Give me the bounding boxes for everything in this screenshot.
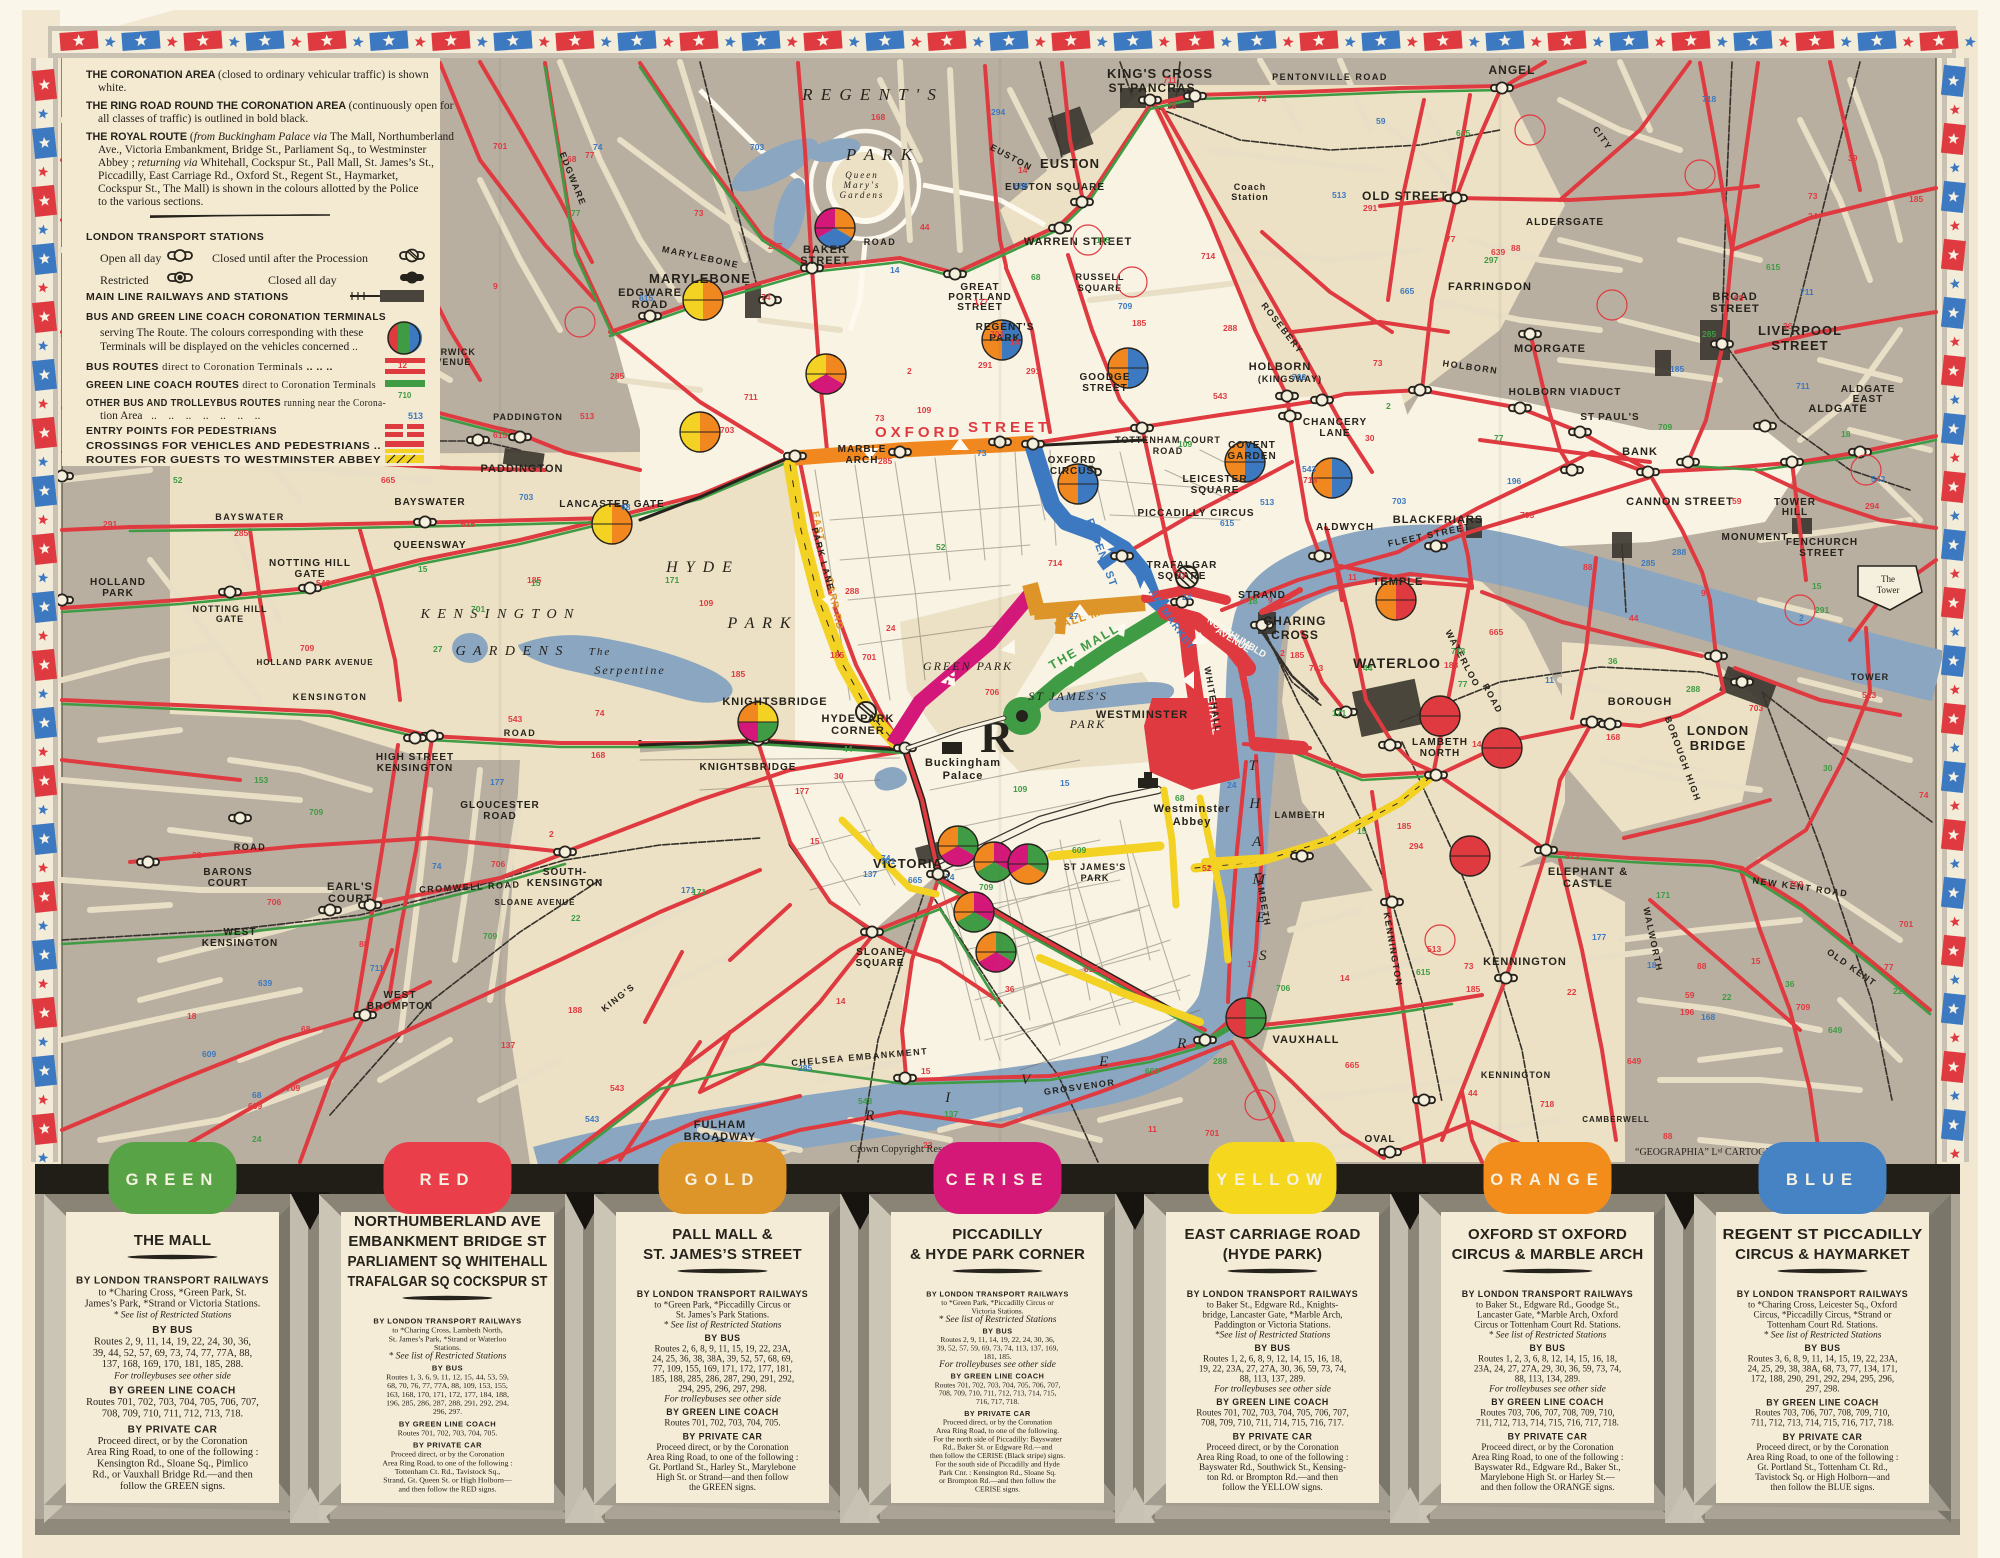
svg-text:MAIN LINE RAILWAYS AND STATION: MAIN LINE RAILWAYS AND STATIONS [86,291,289,303]
svg-text:R: R [864,1108,875,1124]
svg-text:665: 665 [908,875,922,885]
svg-text:CROSS: CROSS [1271,628,1319,642]
svg-text:513: 513 [1565,851,1579,861]
svg-text:Proceed direct, or by the Coro: Proceed direct, or by the Coronation [656,1442,789,1452]
svg-text:* See list of Restricted Stati: * See list of Restricted Stations [1489,1330,1607,1341]
svg-text:73: 73 [694,208,704,218]
svg-text:709: 709 [1796,1002,1810,1012]
svg-text:RED: RED [420,1171,476,1189]
svg-text:665: 665 [381,475,395,485]
svg-text:NORTH: NORTH [1420,748,1461,759]
svg-text:KENSINGTON: KENSINGTON [293,692,368,702]
svg-text:Terminals will be displayed on: Terminals will be displayed on the vehic… [100,341,358,353]
svg-text:NORTHUMBERLAND AVE: NORTHUMBERLAND AVE [354,1213,541,1230]
svg-text:LAMBETH: LAMBETH [1412,737,1468,748]
svg-text:615: 615 [639,293,653,303]
svg-text:H: H [1248,796,1261,812]
svg-text:701: 701 [1899,919,1913,929]
svg-text:ST PAUL'S: ST PAUL'S [1580,412,1639,423]
svg-text:513: 513 [1260,497,1274,507]
svg-text:Gt. Portland St., Harley St.,: Gt. Portland St., Harley St., Marylebone [649,1462,796,1472]
svg-text:718: 718 [1540,1099,1554,1109]
svg-text:23A, 24, 27, 27A, 29, 30, 36,: 23A, 24, 27, 27A, 29, 30, 36, 59, 73, 74… [1474,1364,1621,1374]
svg-text:ton Rd. or Brompton Rd.—and th: ton Rd. or Brompton Rd.—and then [1207,1472,1339,1482]
svg-text:MOORGATE: MOORGATE [1514,343,1586,355]
svg-text:73: 73 [1373,358,1383,368]
svg-text:KNIGHTSBRIDGE: KNIGHTSBRIDGE [700,762,797,773]
svg-text:HYDE PARK: HYDE PARK [822,713,895,725]
svg-text:Routes 701, 702, 703, 704, 705: Routes 701, 702, 703, 704, 705, 706, 707… [1196,1408,1349,1418]
svg-text:297: 297 [1484,255,1498,265]
svg-text:Routes 701, 702, 703, 704, 705: Routes 701, 702, 703, 704, 705. [664,1418,780,1428]
svg-text:OVAL: OVAL [1364,1134,1395,1145]
svg-text:Coach: Coach [1234,182,1267,192]
svg-text:36: 36 [1608,656,1618,666]
svg-text:711, 712, 713, 714, 715, 716,: 711, 712, 713, 714, 715, 716, 717, 718. [1751,1418,1894,1428]
svg-text:FARRINGDON: FARRINGDON [1448,281,1532,293]
svg-text:701: 701 [471,604,485,614]
svg-text:Proceed direct, or by the Coro: Proceed direct, or by the Coronation [1481,1442,1614,1452]
svg-text:Area Ring Road, to one of the: Area Ring Road, to one of the following … [1747,1452,1899,1462]
svg-text:52: 52 [1202,863,1212,873]
svg-text:Proceed direct, or by the Coro: Proceed direct, or by the Coronation [1206,1442,1339,1452]
svg-text:BY LONDON TRANSPORT RAILWAYS: BY LONDON TRANSPORT RAILWAYS [76,1276,269,1287]
svg-text:52: 52 [936,542,946,552]
svg-text:ALDWYCH: ALDWYCH [1316,522,1374,533]
svg-text:714: 714 [1048,558,1062,568]
svg-text:703: 703 [519,492,533,502]
svg-text:The: The [589,646,612,658]
svg-text:GARDEN: GARDEN [1227,451,1276,462]
svg-text:Open all day: Open all day [100,251,161,265]
svg-text:709: 709 [300,643,314,653]
svg-text:709: 709 [979,882,993,892]
svg-text:27: 27 [1069,611,1079,621]
svg-text:513: 513 [1427,944,1441,954]
svg-text:Piccadilly, East Carriage Rd.,: Piccadilly, East Carriage Rd., Oxford St… [98,170,398,182]
svg-text:68: 68 [1175,793,1185,803]
svg-text:703: 703 [1292,372,1306,382]
svg-text:GREEN: GREEN [126,1171,220,1189]
svg-text:14: 14 [836,996,846,1006]
svg-text:Routes 1, 2, 3, 6, 8, 12, 14,: Routes 1, 2, 3, 6, 8, 12, 14, 15, 16, 18… [1478,1354,1617,1364]
svg-text:2: 2 [1386,401,1391,411]
svg-text:Westminster: Westminster [1154,803,1231,815]
svg-text:COURT: COURT [328,893,372,905]
svg-text:52: 52 [173,475,183,485]
svg-text:HOLLAND PARK AVENUE: HOLLAND PARK AVENUE [256,658,373,667]
svg-text:Area Ring Road, to one of the: Area Ring Road, to one of the following … [382,1458,512,1467]
svg-text:615: 615 [1766,262,1780,272]
svg-text:709: 709 [483,931,497,941]
svg-text:Marylebone High St. or Harley: Marylebone High St. or Harley St.— [1480,1472,1616,1482]
svg-text:168: 168 [871,112,885,122]
svg-text:to the various sections.: to the various sections. [98,196,204,208]
svg-text:649: 649 [1828,1025,1842,1035]
svg-text:V: V [1021,1072,1032,1088]
svg-text:109: 109 [917,405,931,415]
svg-text:ROUTES FOR GUESTS TO WESTMINST: ROUTES FOR GUESTS TO WESTMINSTER ABBEY [86,454,381,466]
svg-text:18: 18 [187,1011,197,1021]
svg-text:GOLD: GOLD [685,1171,761,1189]
svg-text:14: 14 [1010,337,1020,347]
svg-text:ORANGE: ORANGE [1490,1171,1604,1189]
svg-text:WEST: WEST [384,990,417,1001]
svg-text:Routes 3, 6, 8, 9, 11, 14, 15,: Routes 3, 6, 8, 9, 11, 14, 15, 19, 22, 2… [1748,1353,1898,1363]
svg-text:77: 77 [1884,962,1894,972]
svg-text:HILL: HILL [1782,507,1808,518]
svg-text:44: 44 [1629,613,1639,623]
svg-text:291: 291 [1026,366,1040,376]
svg-text:Serpentine: Serpentine [594,663,665,677]
svg-text:WARREN STREET: WARREN STREET [1024,236,1132,248]
svg-text:BY PRIVATE CAR: BY PRIVATE CAR [1783,1432,1863,1442]
svg-text:22: 22 [571,913,581,923]
svg-text:High St. or Strand—and then fo: High St. or Strand—and then follow [656,1472,789,1482]
svg-text:I: I [944,1090,951,1106]
svg-text:88: 88 [1697,961,1707,971]
svg-text:CROSSINGS FOR VEHICLES AND PED: CROSSINGS FOR VEHICLES AND PEDESTRIANS .… [86,440,381,452]
svg-text:HOLBORN VIADUCT: HOLBORN VIADUCT [1509,387,1622,398]
svg-text:THE ROYAL ROUTE (from Buckingh: THE ROYAL ROUTE (from Buckingham Palace … [86,131,454,143]
svg-text:* See list of Restricted Stati: * See list of Restricted Stations [114,1310,232,1321]
svg-text:all classes of traffic) is out: all classes of traffic) is outlined in b… [98,113,308,125]
svg-text:716, 717, 718.: 716, 717, 718. [976,1397,1019,1406]
svg-text:Bayswater Rd., Edgware Rd., Ba: Bayswater Rd., Edgware Rd., Baker St., [1474,1462,1620,1472]
svg-text:2: 2 [1799,613,1804,623]
svg-text:291: 291 [1363,203,1377,213]
svg-text:NOTTING HILL: NOTTING HILL [269,558,351,569]
svg-text:BUS AND GREEN LINE COACH CORON: BUS AND GREEN LINE COACH CORONATION TERM… [86,311,386,323]
svg-text:14: 14 [1018,165,1028,175]
svg-text:to *Charing Cross, *Green Park: to *Charing Cross, *Green Park, St. [98,1287,246,1298]
svg-text:Circus or Tottenham Court Rd.: Circus or Tottenham Court Rd. Stations. [1474,1320,1620,1330]
svg-text:Routes 1, 2, 6, 8, 9, 12, 14,: Routes 1, 2, 6, 8, 9, 12, 14, 15, 16, 18… [1203,1354,1342,1364]
svg-text:the GREEN signs.: the GREEN signs. [689,1482,756,1492]
svg-text:27: 27 [433,644,443,654]
svg-text:EARL'S: EARL'S [327,881,373,893]
svg-text:15: 15 [531,578,541,588]
svg-text:* See list of Restricted Stati: * See list of Restricted Stations [939,1314,1057,1325]
svg-text:15: 15 [1812,581,1822,591]
svg-text:SLOANE AVENUE: SLOANE AVENUE [494,898,575,907]
svg-text:297: 297 [768,241,782,251]
svg-text:BY GREEN LINE COACH: BY GREEN LINE COACH [1216,1397,1328,1407]
svg-text:bridge, Lancaster Gate, *Marbl: bridge, Lancaster Gate, *Marble Arch, [1202,1310,1342,1320]
svg-text:CIRCUS: CIRCUS [1050,466,1094,477]
svg-text:Routes 703, 706, 707, 708, 709: Routes 703, 706, 707, 708, 709, 710, [1480,1408,1614,1418]
svg-text:BANK: BANK [1622,446,1658,458]
svg-text:PARLIAMENT SQ WHITEHALL: PARLIAMENT SQ WHITEHALL [348,1253,548,1270]
svg-text:ROAD: ROAD [504,728,537,738]
svg-text:172, 188, 290, 291, 292, 294,: 172, 188, 290, 291, 292, 294, 295, 296, [1751,1373,1894,1383]
svg-text:Abbey ; returning via Whitehal: Abbey ; returning via Whitehall, Cockspu… [98,157,434,169]
svg-text:BY BUS: BY BUS [704,1333,740,1343]
svg-text:(KINGSWAY): (KINGSWAY) [1258,374,1322,384]
svg-text:BY GREEN LINE COACH: BY GREEN LINE COACH [1491,1397,1603,1407]
svg-text:Restricted: Restricted [100,273,149,287]
svg-text:59: 59 [1732,496,1742,506]
svg-text:649: 649 [1627,1056,1641,1066]
svg-text:CHARING: CHARING [1264,614,1327,628]
svg-text:543: 543 [1302,464,1316,474]
svg-text:288: 288 [1686,684,1700,694]
svg-text:BY LONDON TRANSPORT RAILWAYS: BY LONDON TRANSPORT RAILWAYS [637,1289,808,1299]
svg-text:77, 109, 155, 169, 171, 172, 1: 77, 109, 155, 169, 171, 172, 177, 181, [653,1364,792,1374]
svg-text:11: 11 [1545,675,1554,685]
svg-text:WESTMINSTER: WESTMINSTER [1096,709,1188,721]
svg-text:BLUE: BLUE [1786,1171,1859,1189]
svg-text:Gt. Portland St., Tottenham Ct: Gt. Portland St., Tottenham Ct. Rd., [1757,1462,1887,1472]
svg-text:68, 70, 76, 77, 77A, 88, 109,: 68, 70, 76, 77, 77A, 88, 109, 153, 155, [387,1381,508,1390]
svg-text:709: 709 [1118,301,1132,311]
svg-text:ST. JAMES’S STREET: ST. JAMES’S STREET [643,1246,802,1263]
svg-text:Abbey: Abbey [1173,816,1212,828]
svg-text:543: 543 [858,1096,872,1106]
svg-text:BY BUS: BY BUS [1804,1343,1840,1353]
svg-text:24: 24 [1227,780,1237,790]
svg-text:PICCADILLY: PICCADILLY [952,1226,1043,1243]
svg-text:609: 609 [1145,1066,1159,1076]
svg-text:177: 177 [795,786,809,796]
svg-text:177: 177 [490,777,504,787]
svg-text:QUEENSWAY: QUEENSWAY [393,540,466,551]
svg-text:Tower: Tower [1877,585,1900,595]
svg-text:STREET: STREET [1082,383,1127,394]
svg-text:BY PRIVATE CAR: BY PRIVATE CAR [128,1424,218,1435]
svg-text:703: 703 [1309,663,1323,673]
svg-text:BY LONDON TRANSPORT RAILWAYS: BY LONDON TRANSPORT RAILWAYS [1462,1289,1633,1299]
svg-text:73: 73 [1464,961,1474,971]
svg-text:K E N S I N G T O N: K E N S I N G T O N [420,607,576,622]
svg-text:294, 295, 296, 297, 298.: 294, 295, 296, 297, 298. [678,1384,767,1394]
svg-text:297, 298.: 297, 298. [1805,1383,1839,1393]
svg-text:OXFORD: OXFORD [875,424,963,441]
svg-text:HIGH STREET: HIGH STREET [376,752,454,763]
svg-text:24: 24 [886,623,896,633]
svg-text:CERISE: CERISE [946,1171,1049,1189]
svg-text:196: 196 [1680,1007,1694,1017]
svg-text:665: 665 [1345,1060,1359,1070]
svg-text:PARK: PARK [1069,717,1106,731]
svg-text:TRAFALGAR SQ COCKSPUR ST: TRAFALGAR SQ COCKSPUR ST [348,1273,548,1290]
svg-text:GREEN LINE COACH ROUTES direct: GREEN LINE COACH ROUTES direct to Corona… [86,379,376,391]
svg-text:718: 718 [1451,646,1465,656]
svg-text:68: 68 [1031,272,1041,282]
svg-text:11: 11 [1148,1124,1157,1134]
svg-text:Palace: Palace [943,770,984,782]
svg-text:S: S [1259,948,1267,964]
svg-text:710: 710 [398,391,412,400]
svg-text:288: 288 [1672,547,1686,557]
svg-text:CIRCUS & HAYMARKET: CIRCUS & HAYMARKET [1735,1246,1910,1263]
svg-text:T: T [1249,758,1259,774]
svg-text:59: 59 [1376,116,1386,126]
svg-text:TOTTENHAM COURT: TOTTENHAM COURT [1115,435,1221,445]
svg-text:74: 74 [1919,790,1929,800]
svg-text:BAYSWATER: BAYSWATER [394,497,465,508]
svg-text:711: 711 [1800,287,1814,297]
svg-text:KING'S CROSS: KING'S CROSS [1107,66,1213,81]
svg-text:285: 285 [610,371,624,381]
svg-text:609: 609 [202,1049,216,1059]
svg-text:15: 15 [1060,778,1070,788]
svg-text:STRAND: STRAND [1238,590,1286,601]
svg-text:711: 711 [1796,381,1810,391]
svg-text:294: 294 [1865,501,1879,511]
svg-text:Tottenham Court Rd. Stations.: Tottenham Court Rd. Stations. [1767,1319,1878,1329]
svg-text:665: 665 [1014,181,1028,191]
svg-text:BRIDGE: BRIDGE [1690,738,1747,753]
svg-text:OLD STREET: OLD STREET [1362,189,1448,203]
svg-text:185: 185 [1397,821,1411,831]
svg-text:543: 543 [1213,391,1227,401]
svg-text:Lancaster Gate, *Marble Arch,: Lancaster Gate, *Marble Arch, Oxford [1477,1310,1618,1320]
svg-text:68: 68 [1734,293,1744,303]
svg-text:THE RING ROAD ROUND THE CORONA: THE RING ROAD ROUND THE CORONATION AREA … [86,100,454,112]
svg-text:109: 109 [699,598,713,608]
svg-text:and then follow the ORANGE sig: and then follow the ORANGE signs. [1481,1482,1615,1492]
svg-text:709: 709 [286,1083,300,1093]
svg-text:A: A [1251,834,1262,850]
svg-text:12: 12 [398,361,407,370]
svg-text:709: 709 [1789,879,1803,889]
svg-text:706: 706 [1276,983,1290,993]
svg-text:Proceed direct, or by the Coro: Proceed direct, or by the Coronation [98,1436,248,1447]
svg-text:BY PRIVATE CAR: BY PRIVATE CAR [683,1432,763,1442]
svg-text:follow the YELLOW signs.: follow the YELLOW signs. [1222,1482,1323,1492]
svg-text:109: 109 [1013,784,1027,794]
svg-text:BY BUS: BY BUS [152,1325,193,1336]
svg-text:BY GREEN LINE COACH: BY GREEN LINE COACH [1766,1397,1878,1407]
svg-text:For trolleybuses see other sid: For trolleybuses see other side [1488,1385,1606,1395]
svg-text:BROADWAY: BROADWAY [684,1131,756,1143]
svg-text:706: 706 [491,859,505,869]
svg-text:VAUXHALL: VAUXHALL [1272,1034,1339,1046]
svg-text:718: 718 [1702,94,1716,104]
svg-text:196, 285, 286, 287, 288, 291,: 196, 285, 286, 287, 288, 291, 292, 294, [386,1398,509,1407]
svg-text:15: 15 [921,1066,931,1076]
svg-text:SQUARE: SQUARE [856,958,905,969]
svg-text:NOTTING HILL: NOTTING HILL [193,604,268,614]
svg-text:P A R K: P A R K [726,615,792,632]
svg-text:153: 153 [254,775,268,785]
svg-text:703: 703 [1749,703,1763,713]
svg-text:SOUTH-: SOUTH- [543,867,587,878]
svg-text:11: 11 [1247,959,1256,969]
svg-text:703: 703 [1520,510,1534,520]
svg-text:137, 168, 169, 170, 181, 185,: 137, 168, 169, 170, 181, 185, 288. [102,1359,244,1370]
svg-text:EMBANKMENT BRIDGE ST: EMBANKMENT BRIDGE ST [348,1233,546,1250]
svg-text:701: 701 [862,652,876,662]
svg-text:615: 615 [461,519,475,529]
svg-text:18: 18 [1841,429,1851,439]
svg-text:171: 171 [665,575,679,585]
svg-text:2: 2 [907,366,912,376]
svg-text:R E G E N T ' S: R E G E N T ' S [801,85,938,104]
svg-text:15: 15 [810,836,820,846]
svg-text:PENTONVILLE ROAD: PENTONVILLE ROAD [1272,72,1388,82]
svg-text:Area Ring Road, to one of the: Area Ring Road, to one of the following … [647,1452,799,1462]
svg-text:708, 709, 710, 711, 712, 713,: 708, 709, 710, 711, 712, 713, 718. [102,1408,243,1419]
svg-text:to *Green Park, *Piccadilly Ci: to *Green Park, *Piccadilly Circus or [654,1300,790,1310]
svg-text:185: 185 [1466,984,1480,994]
svg-text:Closed until after the Process: Closed until after the Procession [212,251,368,265]
svg-text:BY LONDON TRANSPORT RAILWAYS: BY LONDON TRANSPORT RAILWAYS [373,1317,521,1326]
svg-text:188: 188 [568,1005,582,1015]
svg-text:711: 711 [1163,75,1177,85]
svg-text:KENSINGTON: KENSINGTON [377,763,454,774]
svg-text:and then follow the RED signs.: and then follow the RED signs. [399,1484,497,1493]
svg-text:74: 74 [595,708,605,718]
svg-text:CERISE signs.: CERISE signs. [975,1485,1020,1494]
svg-text:BOROUGH: BOROUGH [1608,696,1672,708]
svg-text:30: 30 [1823,763,1833,773]
svg-text:Tavistock Sq. or High Holborn—: Tavistock Sq. or High Holborn—and [1755,1472,1890,1482]
svg-text:77: 77 [571,208,581,218]
svg-text:9: 9 [493,281,498,291]
svg-text:STREET: STREET [800,255,849,267]
svg-text:88, 113, 137, 289.: 88, 113, 137, 289. [1240,1374,1306,1384]
svg-text:543: 543 [508,714,522,724]
svg-text:Routes 703, 706, 707, 708, 709: Routes 703, 706, 707, 708, 709, 710, [1755,1408,1889,1418]
svg-text:30: 30 [1365,433,1375,443]
svg-text:88: 88 [1663,1131,1673,1141]
svg-text:MONUMENT: MONUMENT [1722,532,1789,543]
svg-text:Routes 701, 702, 703, 704, 705: Routes 701, 702, 703, 704, 705, 706, 707… [86,1397,259,1408]
svg-text:BY LONDON TRANSPORT RAILWAYS: BY LONDON TRANSPORT RAILWAYS [1737,1289,1908,1299]
svg-text:For trolleybuses see other sid: For trolleybuses see other side [938,1360,1056,1370]
svg-text:KENSINGTON: KENSINGTON [202,938,279,949]
svg-text:15: 15 [1751,956,1761,966]
svg-text:543: 543 [610,1083,624,1093]
svg-text:9: 9 [1268,595,1273,605]
svg-text:FENCHURCH: FENCHURCH [1786,537,1858,548]
svg-text:185: 185 [731,669,745,679]
svg-text:73: 73 [1808,191,1818,201]
svg-text:171: 171 [1195,617,1209,627]
svg-text:18: 18 [1167,101,1177,111]
svg-text:68: 68 [252,1090,262,1100]
svg-text:ENTRY POINTS FOR PEDESTRIANS: ENTRY POINTS FOR PEDESTRIANS [86,425,277,437]
svg-text:BY LONDON TRANSPORT RAILWAYS: BY LONDON TRANSPORT RAILWAYS [926,1290,1069,1299]
svg-text:68: 68 [567,154,577,164]
svg-text:185: 185 [830,650,844,660]
svg-text:74: 74 [761,292,771,302]
svg-text:GATE: GATE [216,614,244,624]
svg-text:24, 25, 36, 38, 38A, 39, 52, 5: 24, 25, 36, 38, 38A, 39, 52, 57, 68, 69, [652,1354,793,1364]
svg-text:Routes 2, 9, 11, 14, 19, 22, 2: Routes 2, 9, 11, 14, 19, 22, 24, 30, 36, [94,1337,251,1348]
svg-text:Area Ring Road, to one of the: Area Ring Road, to one of the following … [87,1447,259,1458]
svg-text:CASTLE: CASTLE [1563,878,1613,890]
svg-text:615: 615 [1084,964,1098,974]
svg-text:BARONS: BARONS [203,867,252,878]
svg-text:BY BUS: BY BUS [432,1364,463,1373]
svg-text:KNIGHTSBRIDGE: KNIGHTSBRIDGE [722,696,827,708]
svg-text:SQUARE: SQUARE [1191,485,1240,496]
svg-text:703: 703 [750,142,764,152]
svg-text:Ave., Victoria Embankment, Bri: Ave., Victoria Embankment, Bridge St., P… [98,144,426,156]
svg-text:H Y D E: H Y D E [665,559,734,576]
svg-text:44: 44 [843,744,853,754]
svg-text:STREET: STREET [1799,548,1844,559]
svg-text:For trolleybuses see other sid: For trolleybuses see other side [113,1371,231,1381]
svg-text:615: 615 [1416,967,1430,977]
svg-text:171: 171 [692,887,706,897]
svg-text:* See list of Restricted Stati: * See list of Restricted Stations [664,1320,782,1331]
svg-text:Closed all day: Closed all day [268,273,337,287]
svg-text:Kensington Rd., Sloane Sq., Pi: Kensington Rd., Sloane Sq., Pimlico [97,1458,248,1469]
